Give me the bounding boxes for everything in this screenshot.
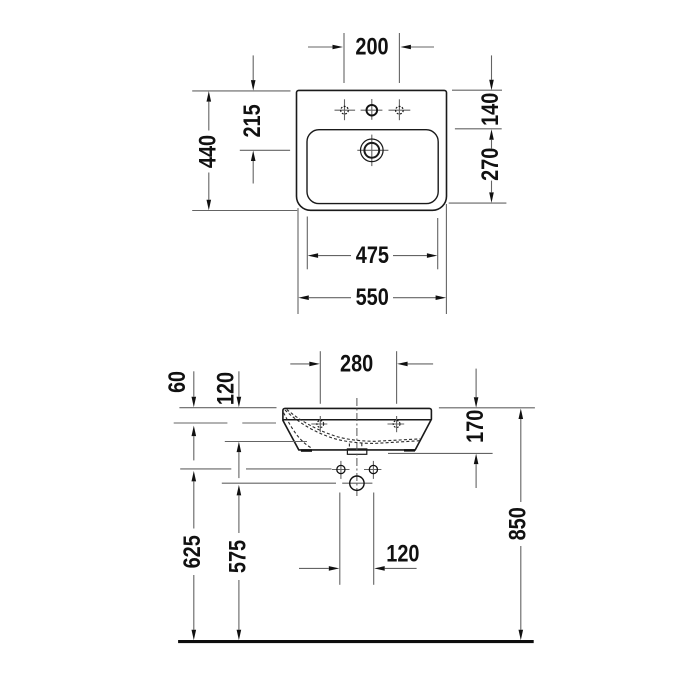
svg-text:625: 625: [179, 535, 206, 568]
svg-text:215: 215: [239, 104, 266, 137]
svg-text:440: 440: [195, 135, 222, 168]
svg-text:550: 550: [356, 284, 389, 311]
svg-text:850: 850: [505, 507, 532, 540]
svg-text:140: 140: [477, 93, 504, 126]
svg-text:60: 60: [164, 371, 191, 393]
svg-text:280: 280: [340, 350, 373, 377]
svg-text:120: 120: [386, 540, 419, 567]
svg-text:475: 475: [356, 242, 389, 269]
svg-text:575: 575: [225, 540, 252, 573]
svg-text:200: 200: [355, 34, 388, 61]
svg-text:270: 270: [477, 148, 504, 181]
svg-text:120: 120: [213, 372, 240, 405]
svg-text:170: 170: [462, 410, 489, 443]
